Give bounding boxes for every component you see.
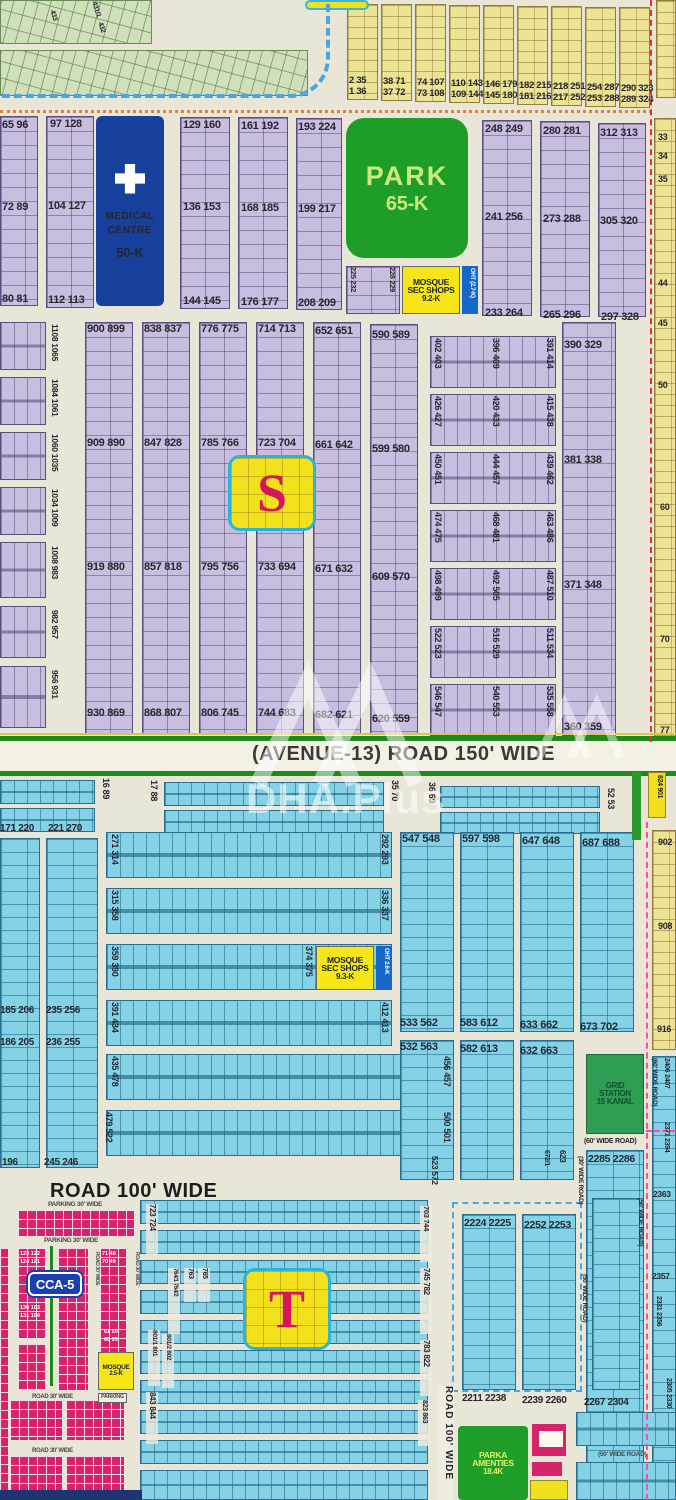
plot-label: 450 451 <box>431 454 443 502</box>
plot-label: 225 232 <box>347 267 359 313</box>
plot-label: 498 499 <box>431 570 443 618</box>
cyan-plot-strip <box>440 786 600 808</box>
cyan-plot-strip <box>576 1412 676 1446</box>
plot-label: 1 36 <box>349 87 366 97</box>
plot-label: 36 69 <box>425 782 437 836</box>
medical-centre-box: MEDICAL CENTRE 50-K <box>96 116 164 306</box>
plot-label: 412 413 <box>378 1002 390 1046</box>
plot-label: 900 899 <box>87 324 125 335</box>
cyan-plot-strip <box>140 1440 428 1464</box>
plot-label: 273 288 <box>543 214 581 225</box>
commercial-block <box>18 1344 46 1390</box>
plot-label: 435 478 <box>108 1056 120 1100</box>
plot-label: 44 <box>658 279 667 288</box>
park-label: 65-K <box>386 194 428 214</box>
cyan-plot-column <box>400 832 454 1032</box>
purple-plot-column <box>370 324 418 734</box>
map-edge-bar <box>0 1490 142 1500</box>
plot-label: 402 403 <box>431 338 443 386</box>
plot-label: 168 185 <box>241 203 279 214</box>
plot-label: 1008 983 <box>48 546 60 596</box>
plot-label: 381 338 <box>564 455 602 466</box>
mosque-93k-box: MOSQUE SEC SHOPS 9.3-K <box>316 946 374 990</box>
plot-label: 801/1 801 <box>148 1330 160 1386</box>
plot-label: 620 559 <box>372 714 410 725</box>
cyan-plot-column <box>0 838 40 1168</box>
cyan-plot-strip <box>140 1350 428 1374</box>
plot-label: 500 501 <box>440 1112 452 1156</box>
plot-label: 390 329 <box>564 340 602 351</box>
plot-label: 254 287 <box>587 83 619 93</box>
plot-label: 714 713 <box>258 324 296 335</box>
plot-label: 511 534 <box>543 628 555 676</box>
cyan-plot-strip <box>576 1462 676 1500</box>
cca5-label: CCA-5 <box>36 1278 74 1291</box>
plot-label: 1108 1065 <box>48 324 60 370</box>
plot-label: 208 209 <box>298 298 336 309</box>
plot-label: 17 88 <box>147 780 159 834</box>
plot-label: 217 252 <box>553 93 585 103</box>
plot-label: 290 323 <box>621 84 653 94</box>
plot-label: 74 107 <box>417 78 444 88</box>
plot-label: 271 314 <box>108 834 120 878</box>
park-label: PARK <box>366 163 449 190</box>
plot-label: 124 121 <box>20 1260 40 1266</box>
plot-label: 843 844 <box>146 1392 158 1444</box>
plot-label: 77 <box>660 726 669 735</box>
plot-label: 289 324 <box>621 95 653 105</box>
plot-label: 420 433 <box>489 396 501 444</box>
plot-label: 671 632 <box>315 564 353 575</box>
plot-label: 123 122 <box>20 1252 40 1258</box>
plot-label: 546 547 <box>431 686 443 734</box>
purple-plot-row <box>0 542 46 598</box>
mosque-label: 9.2-K <box>422 295 440 303</box>
road-median-green <box>50 1246 53 1386</box>
road-label: ROAD 30' WIDE <box>32 1394 73 1400</box>
cyan-plot-strip <box>140 1470 428 1500</box>
plot-label: 2331 2356 <box>652 1296 664 1354</box>
plot-label: 744 683 <box>258 708 296 719</box>
plot-label: 426 427 <box>431 396 443 444</box>
plot-label: 687 688 <box>582 838 620 849</box>
avenue-13-label: (AVENUE-13) ROAD 150' WIDE <box>252 744 555 764</box>
plot-label: 37 72 <box>383 88 405 98</box>
grid-station-label: 15 KANAL <box>597 1098 634 1106</box>
plot-label: 73 108 <box>417 89 444 99</box>
plot-label: 233 264 <box>485 308 523 319</box>
medical-centre-label: MEDICAL <box>105 212 154 222</box>
plot-label: 70 49 <box>102 1260 116 1266</box>
plot-label: 80 81 <box>2 294 28 305</box>
plot-label: 2305 2330 <box>662 1378 674 1434</box>
plot-label: 795 756 <box>201 562 239 573</box>
plot-label: 1084 1061 <box>48 379 60 425</box>
plot-label: 633 662 <box>520 1020 558 1031</box>
plot-label: 930 869 <box>87 708 125 719</box>
plot-label: 908 <box>658 922 672 931</box>
cyan-plot-strip <box>0 780 95 804</box>
plot-label: 2285 2286 <box>588 1154 635 1165</box>
oht-box: OHT 2.6-K <box>376 946 392 990</box>
plot-label: 857 818 <box>144 562 182 573</box>
cyan-plot-column <box>580 832 634 1032</box>
plot-label: 2211 2238 <box>462 1394 506 1404</box>
plot-label: 801/2 802 <box>162 1334 174 1388</box>
plot-label: 109 144 <box>451 90 483 100</box>
plot-label: 60 <box>660 503 669 512</box>
plot-label: 535 558 <box>543 686 555 734</box>
plot-label: 623 <box>556 1150 568 1186</box>
plot-label: 181 216 <box>519 92 551 102</box>
plot-label: 236 255 <box>46 1038 80 1048</box>
sector-boundary-dashed <box>646 822 648 1500</box>
commercial-block <box>66 1456 124 1492</box>
plot-label: 130 103 <box>20 1306 40 1312</box>
cyan-plot-strip <box>106 832 392 878</box>
plot-label: 919 880 <box>87 562 125 573</box>
grid-station-box: GRID STATION 15 KANAL <box>586 1054 644 1134</box>
plot-label: 765 <box>198 1268 210 1302</box>
plot-label: 672/1 <box>540 1150 552 1186</box>
cyan-plot-strip <box>106 1110 436 1156</box>
cca5-badge: CCA-5 <box>28 1272 82 1296</box>
plot-label: 199 217 <box>298 204 336 215</box>
commercial-block <box>58 1248 88 1390</box>
plot-label: 823 863 <box>418 1400 430 1446</box>
cyan-plot-strip <box>140 1200 428 1224</box>
plot-label: 2371 2394 <box>660 1122 672 1180</box>
oht-box: OHT (2.7-K) <box>462 266 478 314</box>
avenue-yellow-line <box>0 733 676 735</box>
plot-label: 391 414 <box>543 338 555 386</box>
plot-label: 221 270 <box>48 824 82 834</box>
plot-label: 516 529 <box>489 628 501 676</box>
commercial-block <box>66 1400 124 1440</box>
purple-plot-column <box>562 322 616 736</box>
plot-label: 806 745 <box>201 708 239 719</box>
plot-label: 193 224 <box>298 122 336 133</box>
parka-label: 18.4K <box>483 1468 503 1476</box>
amenity-plot-box <box>530 1480 568 1500</box>
purple-plot-column <box>180 117 230 309</box>
plot-label: 444 457 <box>489 454 501 502</box>
plot-label: 61 50 <box>104 1330 118 1336</box>
cyan-plot-strip <box>164 810 384 834</box>
purple-plot-column <box>85 322 133 734</box>
cyan-plot-strip <box>140 1230 428 1254</box>
plot-label: 723 704 <box>258 438 296 449</box>
cyan-plot-column <box>592 1198 640 1390</box>
plot-label: 723 724 <box>146 1204 158 1254</box>
sector-t-marker: T <box>243 1268 331 1350</box>
plot-label: 2406 2407 <box>660 1058 672 1116</box>
plot-label: 2357 <box>652 1272 670 1281</box>
plot-label: 523 572 <box>428 1156 440 1198</box>
plot-label: 228 229 <box>386 267 398 313</box>
plot-label: 245 246 <box>44 1158 78 1168</box>
plot-label: 136 153 <box>183 202 221 213</box>
medical-centre-label: CENTRE <box>108 226 152 236</box>
cyan-plot-strip <box>440 812 600 834</box>
plot-label: 468 481 <box>489 512 501 560</box>
purple-plot-column <box>46 116 94 308</box>
commercial-block <box>10 1456 62 1492</box>
dha-plot-map: 433 432 431/1 2 35 1 36 38 71 37 72 74 1… <box>0 0 676 1500</box>
plot-label: 185 206 <box>0 1006 34 1016</box>
plot-label: 292 293 <box>378 834 390 878</box>
plot-label: 297 328 <box>601 312 639 323</box>
commercial-block <box>532 1462 562 1476</box>
sector-s-marker: S <box>228 455 316 531</box>
purple-plot-row <box>0 377 46 425</box>
plot-label: 34 <box>658 152 667 161</box>
plot-label: 112 113 <box>48 295 84 306</box>
plot-label: 916 <box>657 1025 671 1034</box>
purple-plot-column <box>313 322 361 734</box>
plot-label: 652 651 <box>315 326 353 337</box>
plot-label: 632 663 <box>520 1046 558 1057</box>
plot-label: 129 160 <box>183 120 221 131</box>
parking-label: PARKING 30' WIDE <box>44 1238 98 1245</box>
plot-label: 533 562 <box>400 1018 438 1029</box>
plot-label: 1034 1009 <box>48 489 60 535</box>
plot-label: 661 642 <box>315 440 353 451</box>
plot-label: 590 589 <box>372 330 410 341</box>
plot-label: 241 256 <box>485 212 523 223</box>
mosque-label: 9.3-K <box>336 973 354 981</box>
plot-label: 146 179 <box>485 80 517 90</box>
plot-label: 360 359 <box>564 722 602 733</box>
plot-label: 336 337 <box>378 890 390 934</box>
plot-label: 110 143 <box>451 79 483 89</box>
cyan-plot-column <box>520 832 574 1032</box>
plot-label: 703 744 <box>420 1206 432 1262</box>
plot-label: 909 890 <box>87 438 125 449</box>
plot-label: 599 580 <box>372 444 410 455</box>
purple-plot-row <box>0 606 46 658</box>
parka-amenities-box: PARKA AMENTIES 18.4K <box>458 1426 528 1500</box>
plot-label: 65 96 <box>2 120 28 131</box>
plot-label: 144 145 <box>183 296 221 307</box>
plot-label: 35 70 <box>388 780 400 834</box>
plot-label: 2224 2225 <box>464 1218 511 1229</box>
plot-label: 70 <box>660 635 669 644</box>
cyan-plot-strip <box>140 1410 428 1434</box>
plot-label: 868 807 <box>144 708 182 719</box>
plot-label: 783 822 <box>420 1340 432 1396</box>
cyan-plot-strip <box>106 1054 436 1100</box>
road-label: ROAD 30' WIDE <box>32 1448 73 1454</box>
parking-label: PARKING 30' WIDE <box>48 1202 102 1209</box>
plot-label: 902 <box>658 838 672 847</box>
plot-label: 72 89 <box>2 202 28 213</box>
plot-label: 50 <box>658 381 667 390</box>
cyan-plot-column <box>460 832 514 1032</box>
plot-label: 33 <box>658 133 667 142</box>
road-label: (60' WIDE ROAD) <box>584 1138 636 1145</box>
plot-label: 2239 2260 <box>522 1396 567 1406</box>
yellow-edge-strip <box>654 118 676 740</box>
commercial-block <box>18 1210 134 1236</box>
commercial-block <box>0 1248 8 1492</box>
plot-label: 532 563 <box>400 1042 438 1053</box>
plot-label: 2 35 <box>349 76 366 86</box>
medical-cross-icon <box>115 164 145 194</box>
commercial-block <box>10 1400 62 1440</box>
plot-label: 439 462 <box>543 454 555 502</box>
road-label: (60' WIDE ROAD) <box>648 1058 660 1138</box>
plot-label: 479 522 <box>102 1112 114 1156</box>
plot-label: 1060 1035 <box>48 434 60 480</box>
plot-label: 35 <box>658 175 667 184</box>
plot-label: 171 220 <box>0 824 34 834</box>
plot-label: 776 775 <box>201 324 239 335</box>
plot-label: 847 828 <box>144 438 182 449</box>
plot-label: 280 281 <box>543 126 581 137</box>
plot-label: 522 523 <box>431 628 443 676</box>
plot-label: 16 89 <box>99 778 111 832</box>
park-65k-box: PARK 65-K <box>346 118 468 258</box>
plot-label: 253 288 <box>587 94 619 104</box>
road-100-label: ROAD 100' WIDE <box>50 1181 217 1201</box>
mosque-92k-box: MOSQUE SEC SHOPS 9.2-K <box>402 266 460 314</box>
plot-label: 45 <box>658 319 667 328</box>
plot-label: 176 177 <box>241 297 279 308</box>
purple-plot-row <box>0 432 46 480</box>
purple-plot-row <box>0 322 46 370</box>
road-label: ROAD 30' WIDE <box>90 1252 102 1338</box>
plot-label: 161 192 <box>241 121 279 132</box>
amenity-plot-box <box>538 1430 564 1448</box>
plot-label: 60 59 <box>104 1338 118 1344</box>
sector-s-letter: S <box>257 462 287 524</box>
cyan-plot-strip <box>106 1000 392 1046</box>
plot-label: 474 475 <box>431 512 443 560</box>
sector-t-letter: T <box>269 1278 305 1340</box>
road-label: ROAD 30' WIDE <box>130 1252 142 1338</box>
plot-label: 235 256 <box>46 1006 80 1016</box>
plot-label: 547 548 <box>402 834 440 845</box>
plot-label: 2363 <box>653 1190 671 1199</box>
plot-label: 248 249 <box>485 124 523 135</box>
plot-824-901-box: 824 901 <box>648 772 666 818</box>
plot-label: 374 375 <box>302 946 314 990</box>
plot-label: 218 251 <box>553 82 585 92</box>
cyan-plot-strip <box>140 1380 428 1404</box>
road-label: (30' WIDE ROAD) <box>574 1156 586 1236</box>
plot-label: 145 180 <box>485 91 517 101</box>
road-edge-green <box>632 772 641 840</box>
plot-label: 763 <box>184 1268 196 1302</box>
plot-label: 265 296 <box>543 310 581 321</box>
plot-label: 824 901 <box>653 775 665 817</box>
road-100-vertical-label: ROAD 100' WIDE <box>438 1386 454 1500</box>
phase-boundary-dashed <box>650 0 652 742</box>
plot-label: 97 128 <box>50 119 82 130</box>
mosque-label: 2.5-K <box>109 1371 122 1377</box>
plot-label: 305 320 <box>600 216 638 227</box>
plot-label: 745 782 <box>420 1268 432 1334</box>
plot-label: 104 127 <box>48 201 86 212</box>
plot-label: 2252 2253 <box>524 1220 571 1231</box>
plot-label: 463 486 <box>543 512 555 560</box>
plot-label: 52 53 <box>604 788 616 838</box>
plot-label: 71 48 <box>102 1252 116 1258</box>
plot-label: 785 766 <box>201 438 239 449</box>
plot-label: 312 313 <box>600 128 638 139</box>
plot-label: 131 104 <box>20 1314 40 1320</box>
plot-label: 186 205 <box>0 1038 34 1048</box>
plot-label: 540 553 <box>489 686 501 734</box>
medical-centre-label: 50-K <box>117 246 144 259</box>
yellow-plot-block <box>656 0 676 98</box>
mosque-25k-box: MOSQUE 2.5-K <box>98 1352 134 1390</box>
plot-label: 582 613 <box>460 1044 498 1055</box>
oht-label: OHT 2.6-K <box>379 948 391 988</box>
plot-label: 764/1 764/2 <box>168 1268 180 1334</box>
plot-label: 371 348 <box>564 580 602 591</box>
plot-label: 956 931 <box>48 670 60 726</box>
cyan-plot-strip <box>164 782 384 806</box>
yellow-edge-strip <box>652 830 676 1050</box>
road-label: (50' WIDE ROAD) <box>634 1198 646 1282</box>
cyan-plot-strip <box>106 888 392 934</box>
plot-label: 982 957 <box>48 610 60 658</box>
road-label: (50' WIDE ROAD) <box>598 1452 646 1459</box>
plot-label: 673 702 <box>580 1022 618 1033</box>
plot-label: 315 358 <box>108 890 120 934</box>
purple-plot-row <box>0 487 46 535</box>
plot-label: 583 612 <box>460 1018 498 1029</box>
purple-plot-column <box>142 322 190 734</box>
plot-label: 609 570 <box>372 572 410 583</box>
plot-label: 733 694 <box>258 562 296 573</box>
plot-label: 456 457 <box>440 1056 452 1100</box>
parking-label: PARKING <box>98 1393 127 1403</box>
road-label: (50' WIDE ROAD) <box>578 1274 590 1348</box>
plot-label: 647 648 <box>522 836 560 847</box>
plot-label: 38 71 <box>383 77 405 87</box>
plot-label: 487 510 <box>543 570 555 618</box>
boundary-dotted-line <box>0 110 652 113</box>
plot-label: 838 837 <box>144 324 182 335</box>
plot-label: 391 434 <box>108 1002 120 1046</box>
plot-label: 597 598 <box>462 834 500 845</box>
plot-label: 396 409 <box>489 338 501 386</box>
plot-label: 415 438 <box>543 396 555 444</box>
plot-label: 196 <box>2 1158 18 1168</box>
plot-label: 182 215 <box>519 81 551 91</box>
plot-label: 359 390 <box>108 946 120 990</box>
cyan-plot-column <box>46 838 98 1168</box>
purple-plot-row <box>0 666 46 728</box>
plot-label: 2267 2304 <box>584 1398 629 1408</box>
cyan-plot-column <box>460 1040 514 1180</box>
plot-label: 682 621 <box>315 710 353 721</box>
oht-label: OHT (2.7-K) <box>465 268 477 312</box>
plot-label: 492 505 <box>489 570 501 618</box>
